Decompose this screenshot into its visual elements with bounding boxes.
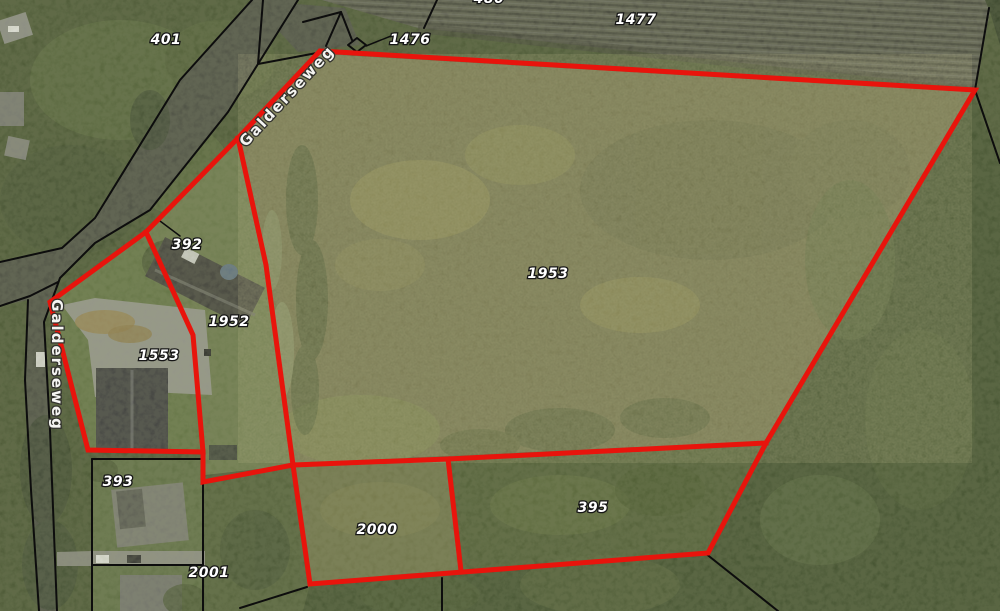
parcel-label-2001: 2001 (189, 565, 230, 581)
parcel-label-1553: 1553 (139, 348, 180, 364)
parcel-label-392: 392 (172, 237, 203, 253)
parcel-label-1952: 1952 (209, 314, 250, 330)
parcel-label-partial: 480 (473, 0, 505, 7)
parcel-label-2000: 2000 (357, 522, 398, 538)
map-canvas[interactable]: 4011476147739219521553195339320012000395… (0, 0, 1000, 611)
road-label-1: Galderseweg (48, 299, 66, 431)
parcel-label-1953: 1953 (528, 266, 569, 282)
parcel-label-1477: 1477 (616, 12, 657, 28)
parcel-label-401: 401 (150, 32, 182, 48)
parcel-label-1476: 1476 (390, 32, 431, 48)
aerial-cadastral-map[interactable]: 4011476147739219521553195339320012000395… (0, 0, 1000, 611)
parcel-label-393: 393 (103, 474, 134, 490)
parcel-label-395: 395 (578, 500, 609, 516)
